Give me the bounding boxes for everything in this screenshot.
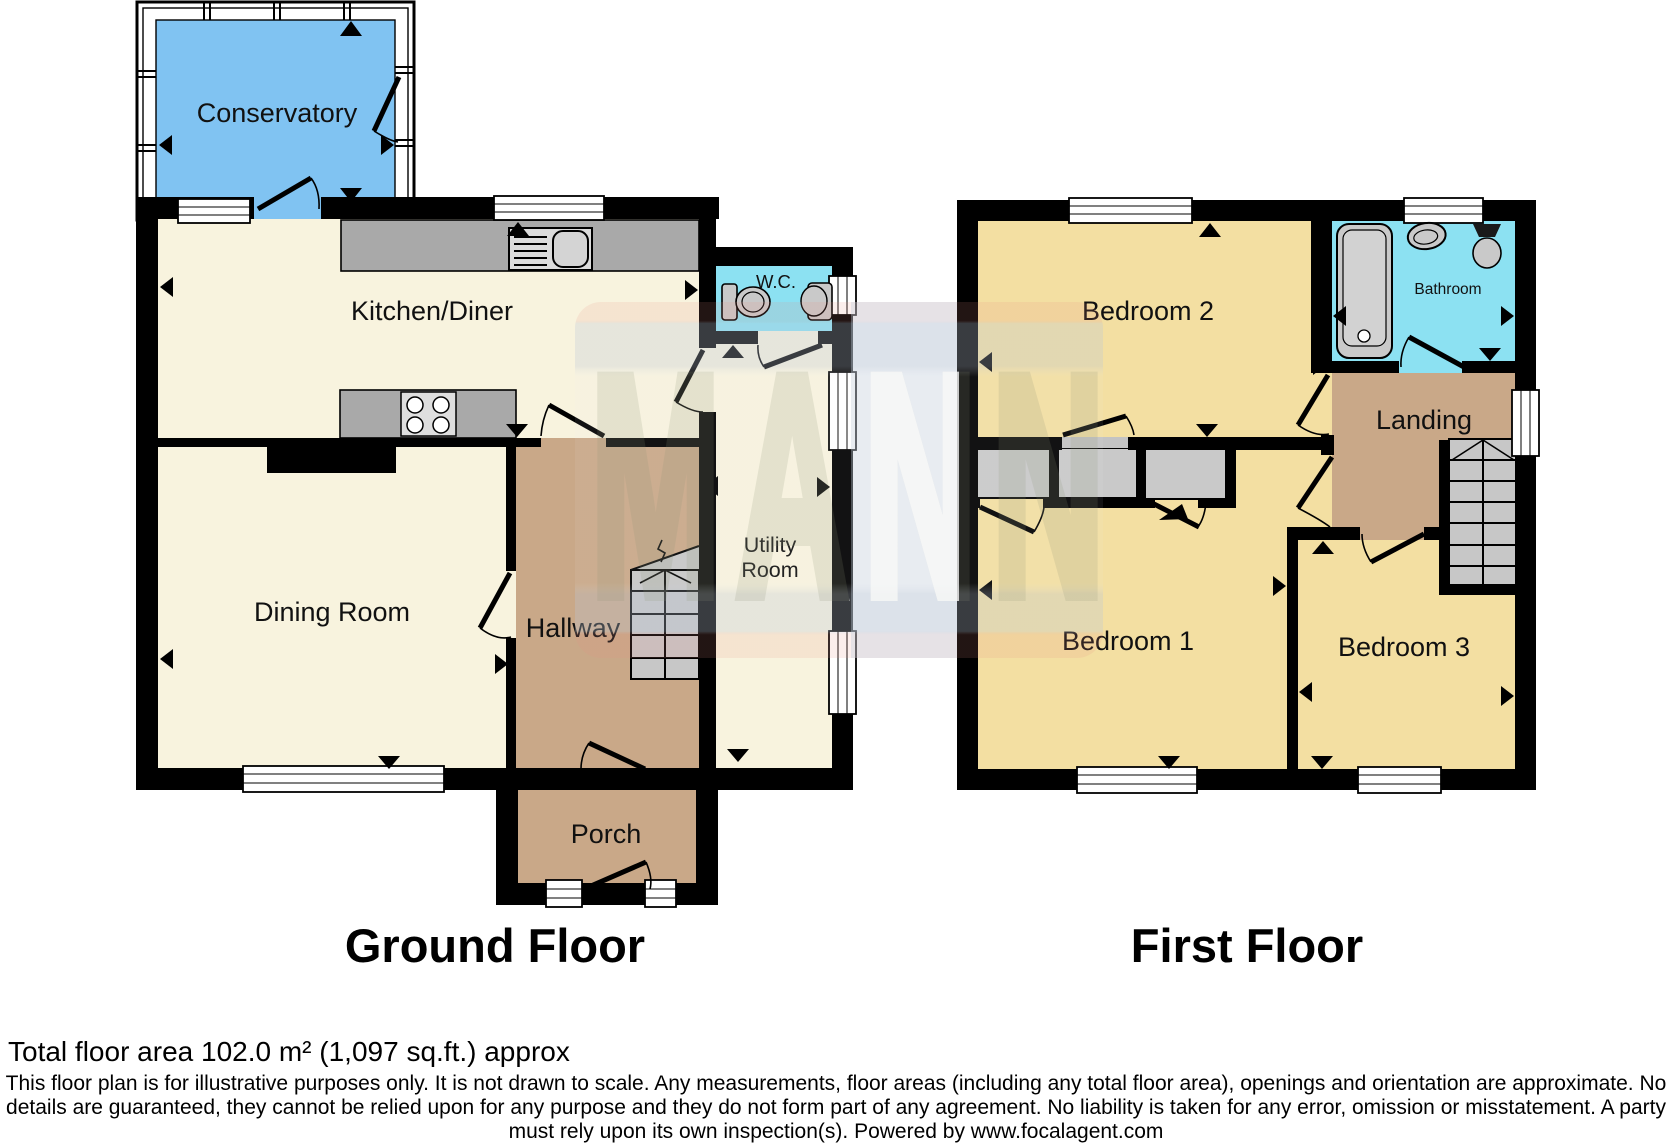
svg-text:Landing: Landing	[1376, 405, 1472, 435]
svg-text:Conservatory: Conservatory	[197, 98, 358, 128]
svg-text:Dining Room: Dining Room	[254, 597, 410, 627]
svg-text:Bathroom: Bathroom	[1414, 281, 1481, 298]
svg-text:First Floor: First Floor	[1131, 919, 1363, 972]
svg-text:Ground Floor: Ground Floor	[345, 919, 645, 972]
svg-text:W.C.: W.C.	[756, 271, 796, 292]
svg-text:Kitchen/Diner: Kitchen/Diner	[351, 296, 513, 326]
svg-text:Bedroom 3: Bedroom 3	[1338, 632, 1470, 662]
svg-text:Porch: Porch	[571, 819, 642, 849]
svg-text:This floor plan is for illustr: This floor plan is for illustrative purp…	[6, 1072, 1667, 1095]
svg-text:details are guaranteed, they c: details are guaranteed, they cannot be r…	[6, 1096, 1666, 1119]
svg-text:Total floor area 102.0 m² (1,0: Total floor area 102.0 m² (1,097 sq.ft.)…	[8, 1036, 570, 1067]
svg-text:must rely upon its own inspect: must rely upon its own inspection(s). Po…	[509, 1120, 1164, 1143]
